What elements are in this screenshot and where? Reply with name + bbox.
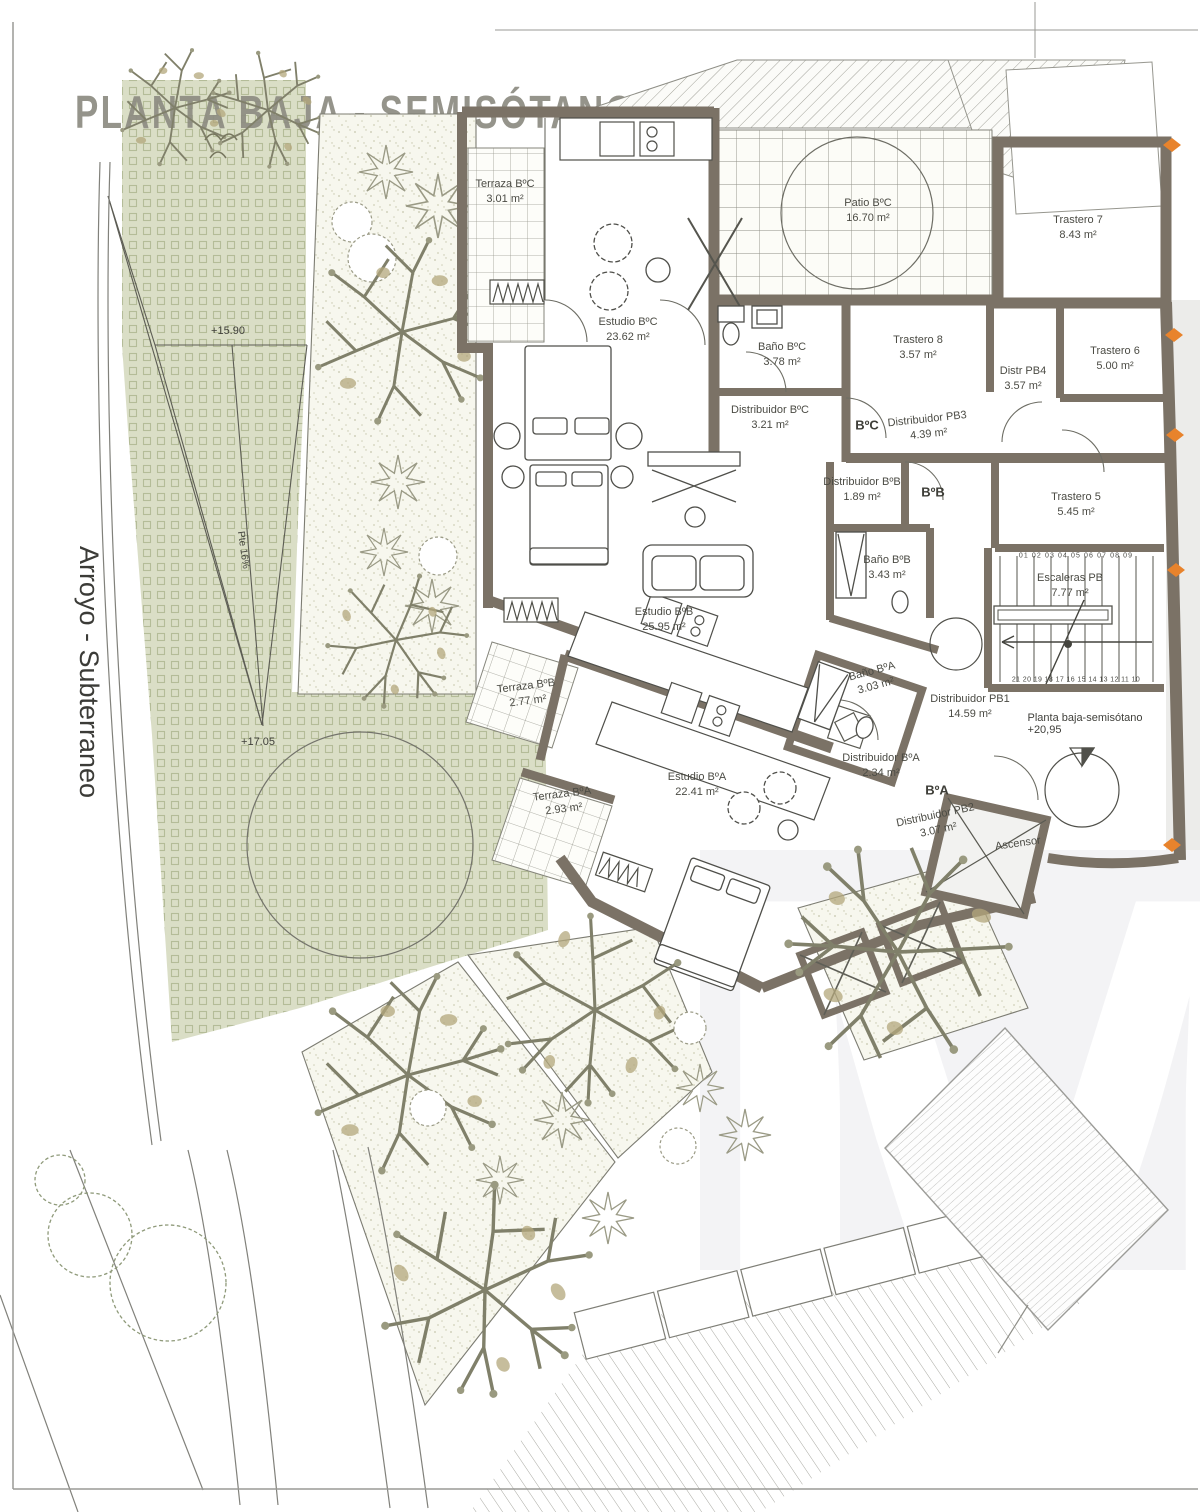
ramp-bottom-level: +17.05 bbox=[241, 736, 275, 748]
unit-label-bc: BºC bbox=[855, 418, 879, 433]
room-label-terraza-bc: Terraza BºC3.01 m² bbox=[475, 177, 534, 207]
stair-numbers-bottom: 21 20 19 18 17 16 15 14 13 12 11 10 bbox=[1012, 677, 1140, 684]
corner-bushes bbox=[35, 1155, 226, 1341]
room-label-distribuidor-bb: Distribuidor BºB1.89 m² bbox=[823, 475, 900, 505]
room-label-trastero5: Trastero 55.45 m² bbox=[1051, 490, 1101, 520]
room-label-escaleras-pb: Escaleras PB7.77 m² bbox=[1037, 571, 1103, 601]
unit-label-bb: BºB bbox=[921, 485, 945, 500]
floor-level-label: Planta baja-semisótano +20,95 bbox=[1028, 712, 1143, 736]
room-label-distribuidor-pb1: Distribuidor PB114.59 m² bbox=[930, 692, 1009, 722]
room-label-trastero7: Trastero 78.43 m² bbox=[1053, 213, 1103, 243]
stair-numbers-top: 01 02 03 04 05 06 07 08 09 bbox=[1019, 553, 1133, 560]
room-label-trastero6: Trastero 65.00 m² bbox=[1090, 344, 1140, 374]
room-label-estudio-bb: Estudio BºB25.95 m² bbox=[635, 605, 693, 635]
unit-label-ba: BºA bbox=[925, 783, 949, 798]
room-label-patio-bc: Patio BºC16.70 m² bbox=[844, 196, 891, 226]
floor-plan-page: M PLANTA BAJA - SEMISÓTANO bbox=[0, 0, 1200, 1512]
room-label-bano-bb: Baño BºB3.43 m² bbox=[863, 553, 910, 583]
ramp-top-level: +15.90 bbox=[211, 325, 245, 337]
room-label-distr-pb4: Distr PB43.57 m² bbox=[1000, 364, 1046, 394]
room-label-estudio-bc: Estudio BºC23.62 m² bbox=[598, 315, 657, 345]
room-label-distribuidor-bc: Distribuidor BºC3.21 m² bbox=[731, 403, 809, 433]
room-label-distribuidor-ba: Distribuidor BºA2.34 m² bbox=[842, 751, 919, 781]
room-label-trastero8: Trastero 83.57 m² bbox=[893, 333, 943, 363]
room-label-estudio-ba: Estudio BºA22.41 m² bbox=[668, 770, 726, 800]
floor-plan-canvas: M PLANTA BAJA - SEMISÓTANO bbox=[0, 0, 1200, 1512]
street-label: Arroyo - Subterraneo bbox=[74, 546, 104, 798]
room-label-bano-bc: Baño BºC3.78 m² bbox=[758, 340, 806, 370]
